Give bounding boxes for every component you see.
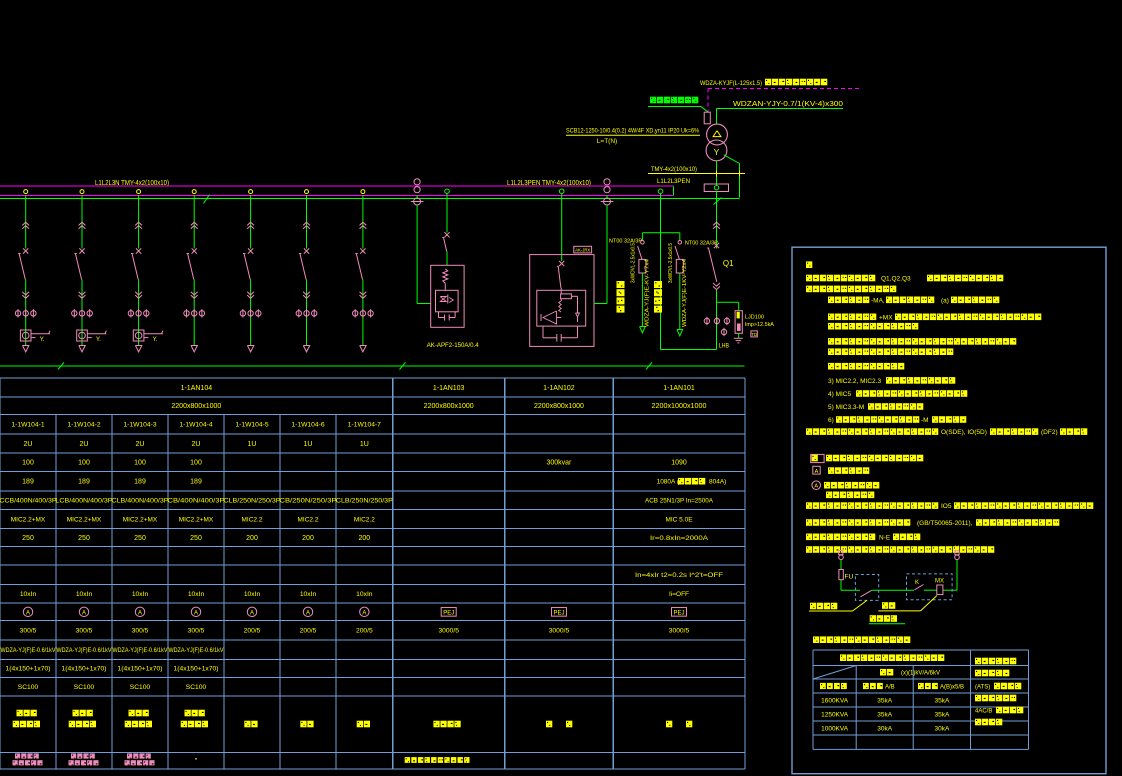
- svg-text:SC100: SC100: [74, 684, 95, 691]
- svg-text:6): 6): [828, 417, 834, 424]
- svg-text:WDZA-YJ(F)E-KV-Y7x4: WDZA-YJ(F)E-KV-Y7x4: [645, 259, 651, 327]
- svg-text:200: 200: [359, 535, 371, 542]
- svg-text:300/5: 300/5: [132, 628, 149, 635]
- svg-text:3000/5: 3000/5: [438, 628, 459, 635]
- svg-text:CLB/400N/400/3P: CLB/400N/400/3P: [112, 497, 169, 504]
- svg-text:NT00 32A/3P: NT00 32A/3P: [685, 241, 718, 247]
- svg-text:35kA: 35kA: [934, 711, 949, 718]
- svg-text:Ir=0.8xIn=2000A: Ir=0.8xIn=2000A: [650, 535, 709, 542]
- svg-text:Imp>12.5kA: Imp>12.5kA: [745, 322, 774, 328]
- svg-text:200/5: 200/5: [356, 628, 373, 635]
- svg-text:1U: 1U: [304, 441, 313, 448]
- svg-text:PEJ: PEJ: [443, 610, 454, 616]
- svg-text:250: 250: [78, 535, 90, 542]
- svg-text:(a): (a): [941, 297, 949, 304]
- svg-text:Q1,Q2,Q3: Q1,Q2,Q3: [881, 276, 911, 283]
- svg-text:SCB12-1250-10/0.4(0.2) 4W/4F: SCB12-1250-10/0.4(0.2) 4W/4F XD,yn11 IP2…: [566, 128, 699, 135]
- svg-text:189: 189: [22, 479, 34, 486]
- svg-text:189: 189: [190, 479, 202, 486]
- svg-text:189: 189: [78, 479, 90, 486]
- svg-text:A: A: [814, 484, 818, 490]
- svg-text:2U: 2U: [192, 441, 201, 448]
- svg-text:TMY-4x2(100x10): TMY-4x2(100x10): [651, 166, 697, 173]
- svg-text:MIC2.2: MIC2.2: [354, 516, 375, 523]
- svg-text:300kvar: 300kvar: [546, 460, 572, 467]
- svg-text:WDZAN-YJY-0.7/1(KV-4)x300: WDZAN-YJY-0.7/1(KV-4)x300: [733, 101, 843, 108]
- svg-text:250: 250: [190, 535, 202, 542]
- svg-text:MIC2.2+MX: MIC2.2+MX: [11, 516, 46, 523]
- svg-text:MIC2.2: MIC2.2: [298, 516, 319, 523]
- svg-text:1U: 1U: [248, 441, 257, 448]
- svg-text:35kA: 35kA: [877, 711, 892, 718]
- svg-text:4AC/B: 4AC/B: [975, 709, 992, 715]
- svg-text:4) MIC5: 4) MIC5: [828, 391, 852, 398]
- svg-text:10xIn: 10xIn: [76, 591, 93, 598]
- svg-text:10xIn: 10xIn: [356, 591, 373, 598]
- svg-text:A: A: [82, 610, 86, 616]
- svg-text:M: M: [955, 546, 959, 552]
- svg-text:1-1AN102: 1-1AN102: [543, 385, 575, 392]
- svg-text:1-1W104-2: 1-1W104-2: [67, 422, 100, 429]
- svg-text:30kA: 30kA: [877, 725, 892, 732]
- svg-text:30kA: 30kA: [934, 725, 949, 732]
- svg-text:300/5: 300/5: [76, 628, 93, 635]
- svg-text:3xWDVL-2.5x1x0.5: 3xWDVL-2.5x1x0.5: [668, 243, 674, 283]
- svg-text:MIC 5.0E: MIC 5.0E: [665, 516, 693, 523]
- svg-text:100: 100: [22, 460, 34, 467]
- svg-text:CLB/250N/250/3P: CLB/250N/250/3P: [336, 497, 393, 504]
- svg-text:2200x800x1000: 2200x800x1000: [424, 403, 474, 410]
- svg-text:1-1W104-4: 1-1W104-4: [179, 422, 212, 429]
- svg-text:A: A: [306, 610, 310, 616]
- svg-text:PEJ: PEJ: [553, 610, 564, 616]
- svg-text:3) MIC2.2, MIC2.3: 3) MIC2.2, MIC2.3: [828, 378, 881, 385]
- svg-text:WDZA-YJ(F)E-0.6/1kV: WDZA-YJ(F)E-0.6/1kV: [113, 648, 168, 654]
- svg-text:Y.: Y.: [96, 337, 101, 343]
- svg-text:WDZA-YJ(F)E-1KV-Y2x4: WDZA-YJ(F)E-1KV-Y2x4: [682, 259, 688, 327]
- svg-text:WDZA-YJ(F)E-0.6/1kV: WDZA-YJ(F)E-0.6/1kV: [1, 648, 56, 654]
- svg-text:PEJ: PEJ: [673, 610, 684, 616]
- svg-text:1090: 1090: [671, 460, 687, 467]
- svg-text:2U: 2U: [24, 441, 33, 448]
- svg-text:2200x1000x1000: 2200x1000x1000: [652, 403, 707, 410]
- svg-text:MIC2.2: MIC2.2: [242, 516, 263, 523]
- svg-text:A/B: A/B: [885, 685, 895, 691]
- svg-text:N-E: N-E: [879, 534, 891, 541]
- svg-text:804A): 804A): [709, 479, 726, 486]
- svg-text:Q1: Q1: [723, 259, 734, 268]
- svg-text:Y: Y: [714, 147, 720, 157]
- svg-text:MIC2.2+MX: MIC2.2+MX: [67, 516, 102, 523]
- svg-text:5) MIC3.3-M: 5) MIC3.3-M: [828, 404, 864, 411]
- svg-text:2U: 2U: [80, 441, 89, 448]
- svg-text:A: A: [194, 610, 198, 616]
- svg-text:1250KVA: 1250KVA: [821, 711, 849, 718]
- svg-text:CLB/250N/250/3P: CLB/250N/250/3P: [224, 497, 281, 504]
- svg-text:AK-JRX: AK-JRX: [575, 248, 590, 253]
- svg-text:A(B)x5/B: A(B)x5/B: [940, 685, 964, 691]
- svg-text:189: 189: [134, 479, 146, 486]
- svg-text:10xIn: 10xIn: [132, 591, 149, 598]
- svg-text:LHB: LHB: [719, 343, 729, 350]
- svg-text:CCB/400N/400/3P: CCB/400N/400/3P: [0, 497, 57, 504]
- svg-text:WDZA-YJ(F)E-0.6/1kV: WDZA-YJ(F)E-0.6/1kV: [169, 648, 224, 654]
- svg-text:1-1AN103: 1-1AN103: [433, 385, 465, 392]
- svg-text:WDZA-KYJF(L-125x1.5): WDZA-KYJF(L-125x1.5): [700, 80, 762, 87]
- svg-text:1-1AN104: 1-1AN104: [181, 385, 213, 392]
- svg-text:ACB 25N1/3P In=2500A: ACB 25N1/3P In=2500A: [645, 498, 714, 505]
- svg-text:(x)(1)kV/A/6kV: (x)(1)kV/A/6kV: [901, 671, 940, 677]
- svg-text:1080A (: 1080A (: [657, 479, 680, 486]
- svg-text:2200x800x1000: 2200x800x1000: [534, 403, 584, 410]
- svg-text:NT00 32A/3P: NT00 32A/3P: [609, 239, 642, 245]
- svg-text:1-1AN101: 1-1AN101: [663, 385, 695, 392]
- svg-text:WDZA-YJ(F)E-0.6/1kV: WDZA-YJ(F)E-0.6/1kV: [57, 648, 112, 654]
- svg-text:35kA: 35kA: [934, 697, 949, 704]
- svg-text:300/5: 300/5: [188, 628, 205, 635]
- svg-text:(GB/T50065-2011),: (GB/T50065-2011),: [917, 520, 973, 527]
- svg-text:3000/5: 3000/5: [669, 628, 690, 635]
- svg-text:FU: FU: [845, 574, 854, 581]
- svg-text:L1L2L3PEN: L1L2L3PEN: [657, 178, 690, 185]
- svg-text:1-1W104-5: 1-1W104-5: [235, 422, 268, 429]
- svg-text:1(4x150+1x70): 1(4x150+1x70): [62, 666, 107, 673]
- svg-text:In=4xIr t2=0.2s I^2't=OFF: In=4xIr t2=0.2s I^2't=OFF: [635, 572, 723, 579]
- svg-text:-MA,: -MA,: [871, 297, 885, 304]
- svg-text:TD: TD: [751, 332, 758, 337]
- svg-text:35kA: 35kA: [877, 697, 892, 704]
- svg-text:SC100: SC100: [130, 684, 151, 691]
- svg-text:LJD100: LJD100: [745, 315, 764, 321]
- svg-text:3000/5: 3000/5: [549, 628, 570, 635]
- svg-text:1600KVA: 1600KVA: [821, 697, 849, 704]
- svg-text:1-1W104-3: 1-1W104-3: [123, 422, 156, 429]
- svg-text:1-1W104-6: 1-1W104-6: [291, 422, 324, 429]
- svg-text:(ATS): (ATS): [975, 685, 990, 691]
- svg-text:2200x800x1000: 2200x800x1000: [171, 403, 221, 410]
- svg-text:LCB/400N/400/3P: LCB/400N/400/3P: [56, 497, 113, 504]
- svg-text:A: A: [26, 610, 30, 616]
- svg-text:100: 100: [78, 460, 90, 467]
- svg-text:L=T(N): L=T(N): [597, 138, 617, 145]
- svg-text:200/5: 200/5: [300, 628, 317, 635]
- svg-text:10xIn: 10xIn: [188, 591, 205, 598]
- svg-text:1000KVA: 1000KVA: [821, 725, 849, 732]
- svg-text:CB/250N/250/3P: CB/250N/250/3P: [280, 497, 337, 504]
- svg-text:1-1W104-1: 1-1W104-1: [11, 422, 44, 429]
- svg-text:Y.: Y.: [40, 337, 45, 343]
- svg-text:A: A: [250, 610, 254, 616]
- svg-text:-M: -M: [921, 417, 929, 424]
- svg-text:1-1W104-7: 1-1W104-7: [348, 422, 381, 429]
- svg-text:200: 200: [246, 535, 258, 542]
- svg-text:MIC2.2+MX: MIC2.2+MX: [179, 516, 214, 523]
- svg-text:MX: MX: [935, 579, 944, 585]
- svg-text:200: 200: [302, 535, 314, 542]
- svg-text:A: A: [362, 610, 366, 616]
- svg-text:10xIn: 10xIn: [20, 591, 37, 598]
- svg-text:2U: 2U: [136, 441, 145, 448]
- svg-text:Y.: Y.: [153, 337, 158, 343]
- svg-text:SC100: SC100: [186, 684, 207, 691]
- svg-text:1U: 1U: [360, 441, 369, 448]
- svg-text:O(SDE), IO(5D): O(SDE), IO(5D): [941, 429, 987, 436]
- svg-text:100: 100: [134, 460, 146, 467]
- svg-text:K: K: [915, 580, 919, 586]
- svg-text:AK-APF2-150A/0.4: AK-APF2-150A/0.4: [427, 342, 479, 349]
- svg-text:1(4x150+1x70): 1(4x150+1x70): [118, 666, 163, 673]
- svg-text:CB/400N/400/3P: CB/400N/400/3P: [168, 497, 225, 504]
- svg-text:(DF2): (DF2): [1041, 429, 1058, 436]
- svg-text:10xIn: 10xIn: [300, 591, 317, 598]
- svg-text:100: 100: [190, 460, 202, 467]
- svg-text:250: 250: [134, 535, 146, 542]
- svg-text:A: A: [138, 610, 142, 616]
- svg-text:250: 250: [22, 535, 34, 542]
- svg-text:A: A: [815, 469, 819, 475]
- svg-text:1(4x150+1x70): 1(4x150+1x70): [174, 666, 219, 673]
- svg-text:1(4x150+1x70): 1(4x150+1x70): [6, 666, 51, 673]
- svg-text:MIC2.2+MX: MIC2.2+MX: [123, 516, 158, 523]
- svg-text:IO5: IO5: [941, 503, 952, 510]
- svg-text:300/5: 300/5: [20, 628, 37, 635]
- svg-text:3xWDVL-2.5x1x0.5: 3xWDVL-2.5x1x0.5: [631, 243, 637, 283]
- svg-text:SC100: SC100: [18, 684, 39, 691]
- svg-text:10xIn: 10xIn: [244, 591, 261, 598]
- svg-text:200/5: 200/5: [244, 628, 261, 635]
- svg-text:Ii=OFF: Ii=OFF: [669, 591, 689, 598]
- svg-text:+MX: +MX: [879, 314, 893, 321]
